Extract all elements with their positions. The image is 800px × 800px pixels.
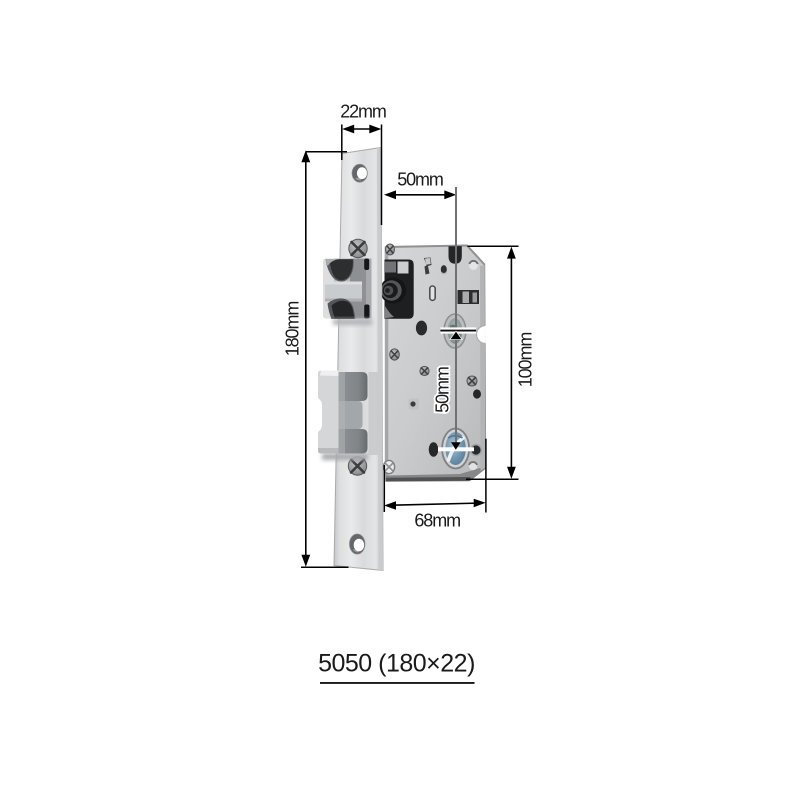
svg-text:100mm: 100mm (516, 333, 536, 388)
svg-text:22mm: 22mm (340, 102, 386, 122)
svg-text:50mm: 50mm (433, 367, 453, 413)
svg-text:68mm: 68mm (414, 510, 460, 530)
svg-text:180mm: 180mm (283, 302, 303, 357)
svg-text:50mm: 50mm (397, 170, 443, 190)
svg-text:5050 (180×22): 5050 (180×22) (318, 650, 475, 678)
